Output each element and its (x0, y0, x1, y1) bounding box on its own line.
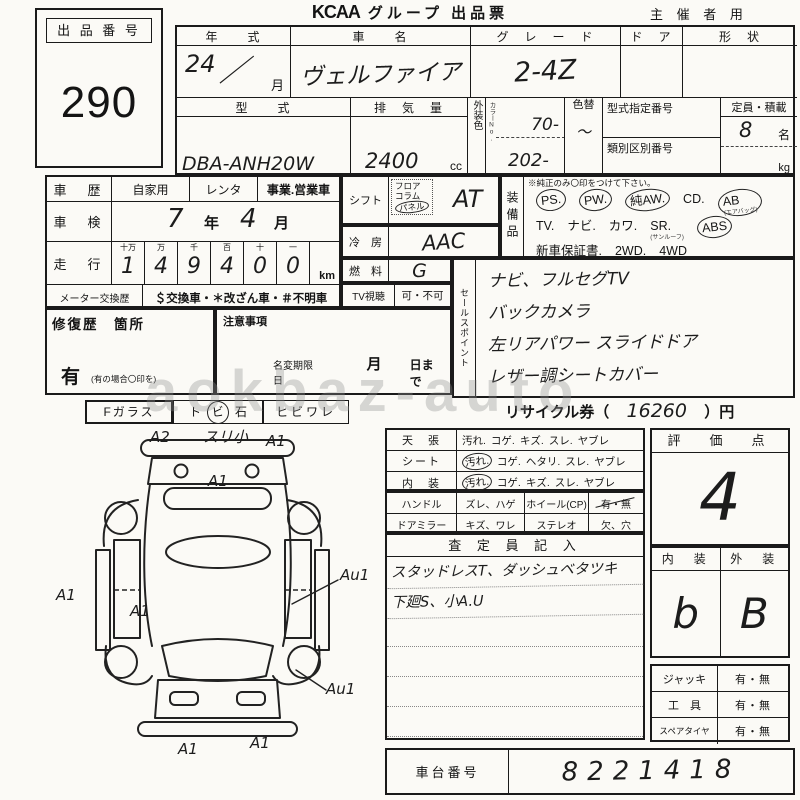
year-label: 年 式 (177, 27, 290, 46)
condition-rows: 天 張汚れ.コゲ.キズ.スレ.ヤブレシート汚れ.コゲ.ヘタリ.スレ.ヤブレ内 装… (387, 430, 643, 493)
inspector-note-line (387, 647, 643, 677)
option: 純AW. (624, 187, 671, 214)
recycle-amount: 16260 (609, 400, 704, 422)
option: コラム (395, 191, 429, 201)
option: 汚れ. (462, 433, 486, 448)
inspector-note-line: 下廻S、小A.U (387, 585, 643, 619)
condition-row: シート汚れ.コゲ.ヘタリ.スレ.ヤブレ (387, 451, 643, 472)
use-option-rental: レンタ (190, 177, 258, 201)
sales-points-box: セールスポイント ナビ、フルセグTVバックカメラ左リアパワー スライドドアレザー… (452, 258, 795, 398)
equipment-box: 装備品 ※純正のみ〇印をつけて下さい。 PS.PW.純AW.CD.AB(エアバッ… (500, 175, 795, 258)
option: ABS (696, 214, 733, 240)
interior-grade: b (652, 571, 721, 658)
inspector-note-line: スタッドレスT、ダッシュベタツキ (387, 555, 643, 589)
capacity-unit: 名 (778, 126, 790, 143)
type-approval-cell: 型式指定番号 類別区別番号 (602, 97, 720, 177)
auction-sheet: aokbaz-auto KCAAグループ 出品票 主 催 者 用 出 品 番 号… (0, 0, 800, 800)
option: キズ. (520, 433, 544, 448)
shaken-year-value: 7 (167, 204, 184, 234)
damage-diagram: A2スリ小A1A1A1A1Au1Au1A1A1 (40, 428, 385, 800)
odometer-digit: 十0 (244, 242, 277, 284)
model-code-label: 型 式 (177, 98, 350, 117)
fuel-label: 燃 料 (343, 260, 389, 281)
option: コゲ. (497, 475, 521, 490)
accessories-box: ジャッキ有・無工 具有・無スペアタイヤ有・無 (650, 664, 790, 742)
ac-label: 冷 房 (343, 227, 389, 256)
car-name-value: ヴェルファイア (299, 52, 461, 92)
color-sub-label: カラーNo. (486, 102, 496, 143)
damage-annotation: Au1 (340, 566, 369, 584)
caution-box: 注意事項 名変期限日 月 日まで (215, 308, 452, 395)
color-cell: 外装色 カラーNo. 70- 202- 色替 〜 (467, 97, 602, 177)
damage-annotation: A1 (266, 432, 286, 450)
caution-label: 注意事項 (217, 310, 450, 329)
score-label: 評 価 点 (652, 430, 788, 453)
damage-annotation: A1 (56, 586, 76, 604)
kcaa-logo: KCAA (312, 2, 360, 22)
use-option-commercial: 事業.営業車 (258, 177, 339, 201)
repair-flag: 有 (61, 362, 80, 389)
meter-history-label: メーター交換歴 (47, 285, 143, 310)
option: TV. (536, 216, 554, 236)
chassis-number-box: 車台番号 8221418 (385, 748, 795, 795)
color-change-mark: 〜 (565, 121, 602, 142)
condition-row: ドアミラーキズ、ワレステレオ欠、穴 (387, 514, 643, 535)
odometer-digit: 千9 (178, 242, 211, 284)
ac-cell: 冷 房 AAC (341, 225, 500, 258)
type-approval-label: 型式指定番号 (603, 98, 720, 138)
option: キズ. (526, 475, 550, 490)
shift-cell: シフト フロアコラムパネル AT (341, 175, 500, 225)
glass-chip-options: トビ石 (173, 400, 263, 424)
option: ヤブレ (594, 454, 626, 469)
inspector-note-line (387, 617, 643, 647)
rename-until-label: 日まで (410, 356, 444, 390)
rename-deadline-label: 名変期限日 (273, 357, 321, 387)
capacity-label: 定員・積載 (721, 98, 797, 117)
year-value: 24 (185, 50, 216, 78)
option: ヘタリ. (526, 454, 560, 469)
option: 汚れ. (461, 472, 493, 492)
tv-label: TV視聴 (343, 285, 395, 306)
sheet-title-text: グループ 出品票 (368, 5, 508, 22)
color-label: 外装色 (469, 100, 484, 177)
model-code-value: DBA-ANH20W (182, 153, 314, 175)
door-cell: ド ア (620, 27, 682, 97)
option: パネル (394, 199, 429, 214)
damage-annotation: A1 (208, 472, 228, 490)
condition-row: 天 張汚れ.コゲ.キズ.スレ.ヤブレ (387, 430, 643, 451)
month-label: 月 (271, 75, 284, 94)
capacity-cell: 定員・積載 8 名 kg (720, 97, 797, 177)
accessory-rows: ジャッキ有・無工 具有・無スペアタイヤ有・無 (652, 666, 788, 744)
exterior-grade: B (721, 571, 789, 658)
shaken-label: 車 検 (47, 202, 112, 241)
payload-unit: kg (778, 162, 790, 174)
interior-label: 内 装 (652, 548, 721, 570)
inspector-header: 査 定 員 記 入 (387, 535, 643, 557)
sheet-title: KCAAグループ 出品票 (230, 2, 590, 23)
damage-annotation: A1 (178, 740, 198, 758)
condition-table-2: ハンドルズレ、ハゲホイール(CP)有・無ドアミラーキズ、ワレステレオ欠、穴 (385, 491, 645, 533)
fuel-value: G (412, 260, 427, 282)
condition-table: 天 張汚れ.コゲ.キズ.スレ.ヤブレシート汚れ.コゲ.ヘタリ.スレ.ヤブレ内 装… (385, 428, 645, 491)
grade-cell: グ レ ー ド 2-4Z (470, 27, 620, 97)
displacement-value: 2400 (365, 149, 418, 173)
year-cell: 年 式 24 ／ 月 (177, 27, 290, 97)
tv-cell: TV視聴 可・不可 (341, 283, 452, 308)
vehicle-table: 年 式 24 ／ 月 車 名 ヴェルファイア グ レ ー ド 2-4Z ド ア … (175, 25, 795, 175)
sales-points-label: セールスポイント (458, 288, 471, 368)
fuel-cell: 燃 料 G (341, 258, 452, 283)
damage-annotation: A1 (250, 734, 270, 752)
shaken-month-unit: 月 (274, 212, 289, 233)
odometer-columns: 十万1万4千9百4十0一0 (112, 242, 310, 284)
option: コゲ. (497, 454, 521, 469)
option: ヤブレ (584, 475, 616, 490)
odometer-unit: km (319, 270, 335, 282)
repair-note: (有の場合〇印を) (91, 373, 156, 385)
option: ビ (206, 400, 230, 425)
class-number-label: 類別区別番号 (603, 138, 720, 156)
option: 石 (235, 405, 247, 419)
option: CD. (683, 189, 705, 209)
option: フロア (395, 181, 429, 191)
capacity-value: 8 (739, 118, 752, 142)
grade-value: 2-4Z (513, 54, 577, 88)
displacement-unit: cc (450, 159, 462, 173)
shaken-year-unit: 年 (204, 212, 219, 233)
year-slash: ／ (219, 46, 249, 90)
option: カワ. (609, 216, 637, 236)
front-glass-label: Fガラス (85, 400, 173, 424)
odometer-digit: 百4 (211, 242, 244, 284)
score-value: 4 (652, 453, 788, 543)
glass-crack-label: ヒビワレ (263, 400, 349, 424)
history-table: 車 歴 自家用 レンタ 事業.営業車 車 検 7 年 4 月 走 行 十万1万4… (45, 175, 341, 308)
shift-options: フロアコラムパネル (391, 179, 433, 215)
accessory-row: スペアタイヤ有・無 (652, 718, 788, 744)
displacement-cell: 排 気 量 2400 cc (350, 97, 467, 177)
use-option-private: 自家用 (112, 177, 190, 201)
car-name-cell: 車 名 ヴェルファイア (290, 27, 470, 97)
option: ヤブレ (578, 433, 610, 448)
shaken-month-value: 4 (240, 204, 257, 234)
door-label: ド ア (621, 27, 682, 46)
recycle-suffix: ）円 (704, 401, 734, 422)
chassis-number-value: 8221418 (509, 748, 794, 796)
damage-annotation: A2 (150, 428, 170, 446)
option: コゲ. (491, 433, 515, 448)
exterior-label: 外 装 (721, 548, 789, 570)
lot-number-label: 出 品 番 号 (46, 18, 152, 43)
damage-annotation: A1 (130, 602, 150, 620)
option: SR.(サンルーフ) (650, 216, 684, 241)
sales-lines: ナビ、フルセグTVバックカメラ左リアパワー スライドドアレザー調シートカバー (476, 260, 793, 396)
chassis-number-label: 車台番号 (387, 750, 509, 793)
car-name-label: 車 名 (291, 27, 470, 46)
meter-history-legend: ＄交換車・＊改ざん車・＃不明車 (143, 285, 339, 310)
equipment-label: 装備品 (504, 191, 521, 242)
grade-label: グ レ ー ド (471, 27, 620, 46)
damage-annotation: Au1 (326, 680, 355, 698)
inspector-note-line (387, 677, 643, 707)
option: ト (189, 405, 201, 419)
option: PW. (578, 187, 613, 212)
use-history-label: 車 歴 (47, 177, 112, 201)
option: ナビ. (567, 216, 595, 236)
glass-parts: トビ石 (186, 405, 250, 419)
option: スレ. (549, 433, 573, 448)
accessory-row: ジャッキ有・無 (652, 666, 788, 692)
tv-value: 可・不可 (395, 285, 450, 306)
option: スレ. (565, 454, 589, 469)
odometer-digit: 十万1 (112, 242, 145, 284)
recycle-prefix: リサイクル券（ (505, 401, 609, 422)
option: AB(エアバッグ) (716, 187, 762, 218)
shift-value: AT (453, 185, 482, 213)
odometer-label: 走 行 (47, 242, 112, 284)
interior-exterior-box: 内 装 外 装 b B (650, 546, 790, 658)
condition-row: ハンドルズレ、ハゲホイール(CP)有・無 (387, 493, 643, 514)
inspector-note-line (387, 707, 643, 737)
score-box: 評 価 点 4 (650, 428, 790, 546)
repair-history-label: 修復歴 箇所 (47, 310, 213, 333)
color-code-bottom: 202- (508, 150, 549, 171)
model-code-cell: 型 式 DBA-ANH20W (177, 97, 350, 177)
lot-number-box: 出 品 番 号 290 (35, 8, 163, 168)
condition-row: 内 装汚れ.コゲ.キズ.スレ.ヤブレ (387, 472, 643, 493)
equipment-lines: PS.PW.純AW.CD.AB(エアバッグ)TV.ナビ.カワ.SR.(サンルーフ… (528, 189, 793, 261)
accessory-row: 工 具有・無 (652, 692, 788, 718)
displacement-label: 排 気 量 (351, 98, 467, 117)
option: PS. (535, 187, 567, 212)
equipment-note: ※純正のみ〇印をつけて下さい。 (528, 178, 793, 189)
audience-label: 主 催 者 用 (650, 4, 795, 23)
shift-label: シフト (343, 177, 389, 223)
color-change-label: 色替 (565, 98, 602, 113)
sales-point-line: レザー調シートカバー (476, 356, 794, 394)
lot-number-value: 290 (37, 78, 161, 128)
odometer-digit: 万4 (145, 242, 178, 284)
repair-history-box: 修復歴 箇所 有 (有の場合〇印を) (45, 308, 215, 395)
inspector-lines: スタッドレスT、ダッシュベタツキ下廻S、小A.U (387, 557, 643, 737)
recycle-fee: リサイクル券（ 16260 ）円 (505, 396, 795, 426)
odometer-digit: 一0 (277, 242, 310, 284)
ac-value: AAC (421, 228, 466, 255)
shape-label: 形 状 (683, 27, 797, 46)
option: 汚れ. (461, 451, 493, 471)
damage-annotation: スリ小 (203, 426, 248, 447)
option: スレ. (555, 475, 579, 490)
color-code-top: 70- (531, 115, 559, 135)
inspector-notes-box: 査 定 員 記 入 スタッドレスT、ダッシュベタツキ下廻S、小A.U (385, 533, 645, 740)
shape-cell: 形 状 (682, 27, 797, 97)
condition-rows2: ハンドルズレ、ハゲホイール(CP)有・無ドアミラーキズ、ワレステレオ欠、穴 (387, 493, 643, 535)
rename-month-label: 月 (367, 353, 382, 374)
